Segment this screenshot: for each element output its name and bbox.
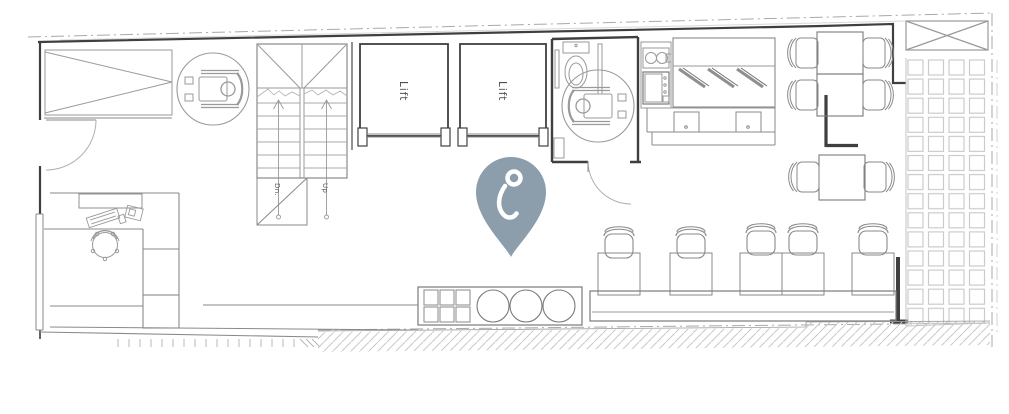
pavement-back-edge <box>60 21 905 40</box>
stair-winders <box>258 44 346 88</box>
lift-2-label: Lift <box>496 81 508 101</box>
dining-table <box>817 74 863 116</box>
dining-chair <box>788 80 818 110</box>
wc-door-arc <box>588 161 631 204</box>
dining-chair <box>864 162 894 192</box>
office-desk <box>79 194 142 208</box>
bar-cube-table <box>782 253 824 295</box>
wall-front <box>40 332 318 337</box>
drainer-racks <box>679 68 767 87</box>
wheelchair-icon <box>177 53 249 125</box>
dining-table <box>817 32 863 74</box>
door-swing-arc <box>46 120 96 170</box>
office-chair <box>91 231 119 261</box>
stair-arrow-up <box>322 100 332 219</box>
dining-chair <box>789 162 819 192</box>
dining-table <box>819 155 865 200</box>
wc-walls <box>552 37 641 162</box>
pavement-hatch <box>318 321 990 352</box>
window-display <box>418 287 582 325</box>
wall-top <box>38 24 906 83</box>
entrance-ramp <box>44 50 172 118</box>
bar-cube-table <box>670 253 712 295</box>
window-seat <box>543 290 575 322</box>
floor-plan-canvas: Dn. Up Lift Lift <box>0 0 1009 414</box>
window-left <box>36 214 43 330</box>
lift-1-label: Lift <box>397 81 409 101</box>
terrace-tile-grid <box>906 58 988 326</box>
window-seat <box>510 290 542 322</box>
window-seat <box>477 290 509 322</box>
grab-rail-right <box>598 44 602 94</box>
terrace <box>906 21 988 326</box>
bar-cube-table <box>598 253 640 295</box>
location-pin-marker[interactable] <box>476 157 546 257</box>
accessible-wc <box>552 37 641 204</box>
front-tick-marks <box>118 339 320 347</box>
bar-cube-table <box>740 253 782 295</box>
stairs-up-label: Up <box>321 183 329 193</box>
lift-1: Lift <box>358 44 450 146</box>
display-crates <box>424 290 470 322</box>
desk-keyboard <box>86 208 120 227</box>
stair-treads <box>257 103 347 168</box>
kitchenette-sink <box>641 42 671 108</box>
grab-rail-left <box>555 50 559 88</box>
window-sill <box>50 305 418 330</box>
stair-landing <box>257 178 307 225</box>
under-counter-unit <box>736 112 761 132</box>
under-counter-unit <box>674 112 699 132</box>
bar-counter <box>590 224 896 321</box>
dining-chair <box>863 38 893 68</box>
stair-break-lines <box>257 89 347 97</box>
floor-plan-drawing: Dn. Up Lift Lift <box>0 0 1009 414</box>
dining-area <box>788 32 895 200</box>
office-area <box>44 193 179 328</box>
wall-partition-dining <box>826 95 858 147</box>
entrance-door <box>46 120 96 170</box>
toilet-icon <box>563 42 589 88</box>
dining-chair <box>788 38 818 68</box>
lift-2: Lift <box>458 44 548 146</box>
building-walls <box>38 24 908 339</box>
bar-cube-table <box>852 253 894 295</box>
terrace-skylight <box>906 21 988 50</box>
staircase: Dn. Up <box>257 44 347 225</box>
bar-stool <box>746 224 776 255</box>
dining-chair <box>863 80 893 110</box>
wc-basin <box>554 138 564 158</box>
bar-stool <box>858 224 888 255</box>
bar-stool <box>788 224 818 255</box>
stairs-down-label: Dn. <box>273 183 281 196</box>
kitchen-counter <box>641 38 775 145</box>
